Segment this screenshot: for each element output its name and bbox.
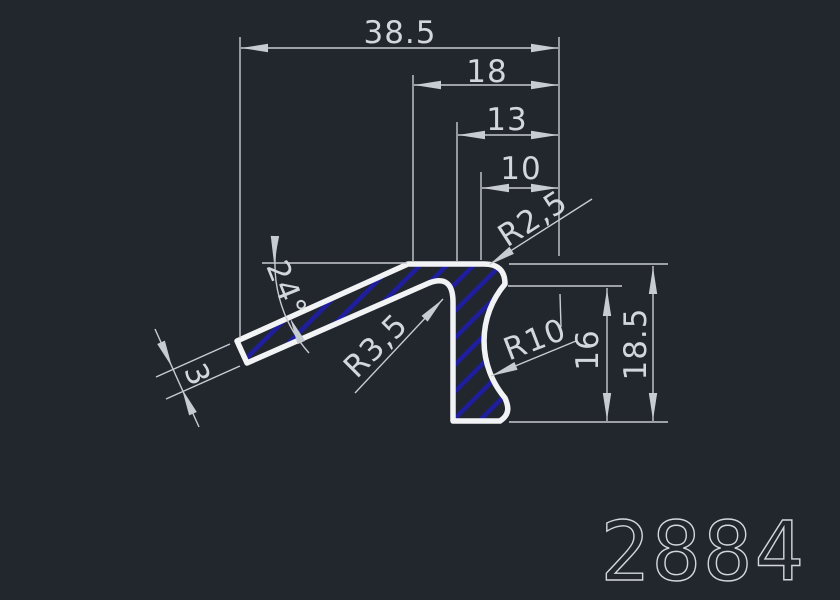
arrowhead <box>458 131 485 139</box>
overall-width-label: 38.5 <box>363 15 436 51</box>
technical-drawing: 38.5 18 13 10 R2,5 24° R3,5 3 R10 16 18.… <box>0 0 840 600</box>
top-corner-radius-label: R2,5 <box>492 184 574 255</box>
inner-height-label: 16 <box>570 329 606 370</box>
arrowhead <box>531 44 558 52</box>
arrowhead <box>531 81 558 89</box>
arrowhead <box>178 387 197 415</box>
arm-thickness-label: 3 <box>176 358 217 392</box>
arrowhead <box>241 44 268 52</box>
mid-width-label: 13 <box>486 102 527 138</box>
side-concave-radius-label: R10 <box>499 312 572 369</box>
cad-drawing-canvas: 38.5 18 13 10 R2,5 24° R3,5 3 R10 16 18.… <box>0 0 840 600</box>
arrowhead <box>603 289 611 316</box>
part-number: 2884 <box>600 505 805 600</box>
arrowhead <box>270 236 279 263</box>
arrowhead <box>531 131 558 139</box>
upper-width-label: 18 <box>466 54 507 90</box>
arrowhead <box>649 267 657 294</box>
arrowhead <box>649 393 657 420</box>
overall-height-label: 18.5 <box>618 307 654 380</box>
arrowhead <box>414 81 441 89</box>
inner-width-label: 10 <box>500 151 541 187</box>
arrowhead <box>603 393 611 420</box>
arrowhead <box>157 341 176 369</box>
